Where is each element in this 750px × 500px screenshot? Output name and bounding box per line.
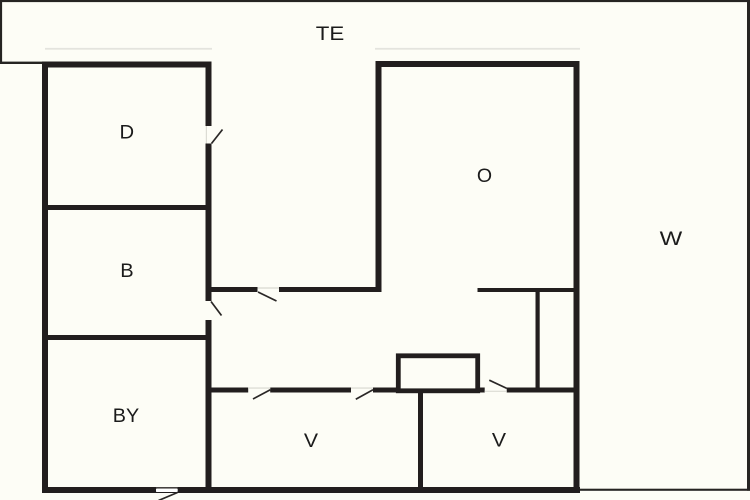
svg-text:O: O: [477, 165, 492, 187]
svg-text:D: D: [120, 122, 135, 144]
svg-text:V: V: [304, 430, 318, 452]
svg-text:W: W: [660, 228, 683, 250]
svg-text:B: B: [120, 260, 133, 282]
svg-text:BY: BY: [113, 405, 139, 427]
svg-text:TE: TE: [316, 23, 345, 45]
svg-text:V: V: [492, 429, 506, 451]
